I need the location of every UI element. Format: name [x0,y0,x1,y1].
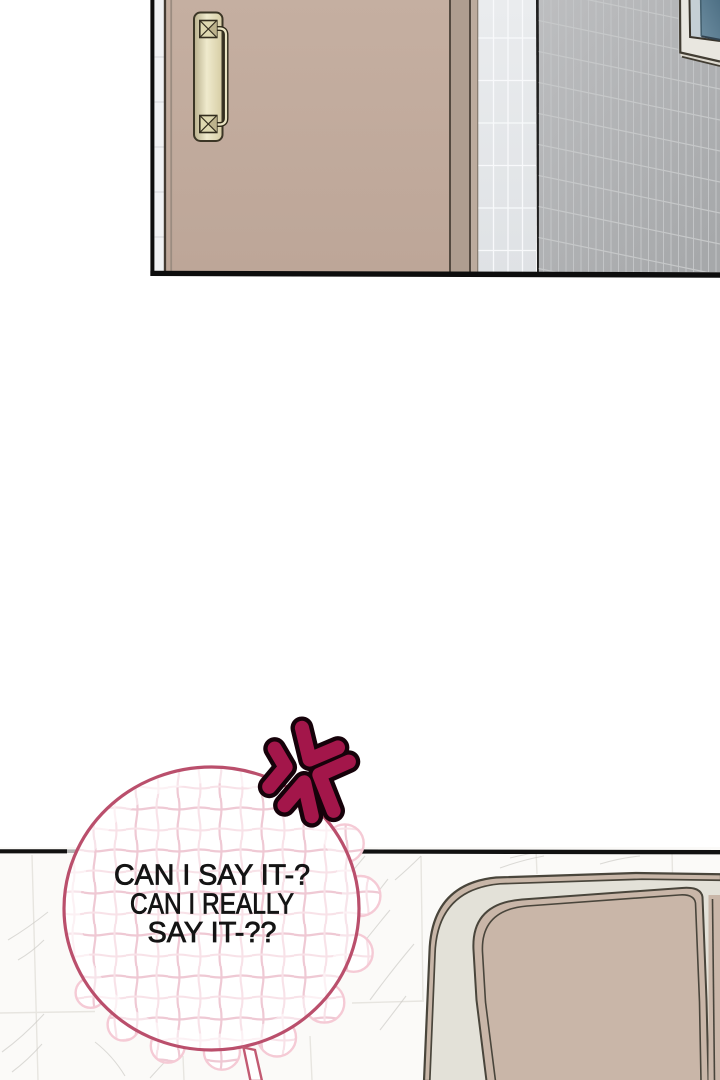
svg-text:SAY IT-??: SAY IT-?? [148,917,277,949]
svg-text:CAN I REALLY: CAN I REALLY [130,889,294,921]
svg-text:CAN I SAY IT-?: CAN I SAY IT-? [114,860,310,892]
